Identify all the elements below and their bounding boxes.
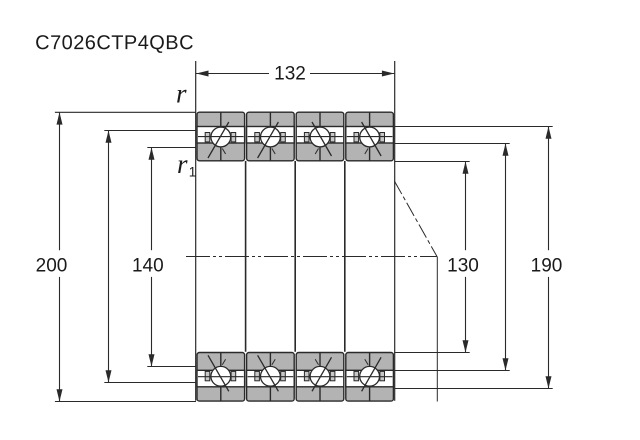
svg-text:200: 200 [36, 256, 68, 277]
svg-text:r: r [177, 149, 188, 179]
svg-text:r: r [176, 79, 187, 109]
svg-text:190: 190 [531, 256, 563, 277]
svg-text:C7026CTP4QBC: C7026CTP4QBC [35, 32, 194, 54]
svg-text:140: 140 [132, 256, 164, 277]
svg-text:132: 132 [274, 64, 306, 85]
svg-text:1: 1 [189, 165, 197, 180]
svg-text:130: 130 [447, 256, 479, 277]
